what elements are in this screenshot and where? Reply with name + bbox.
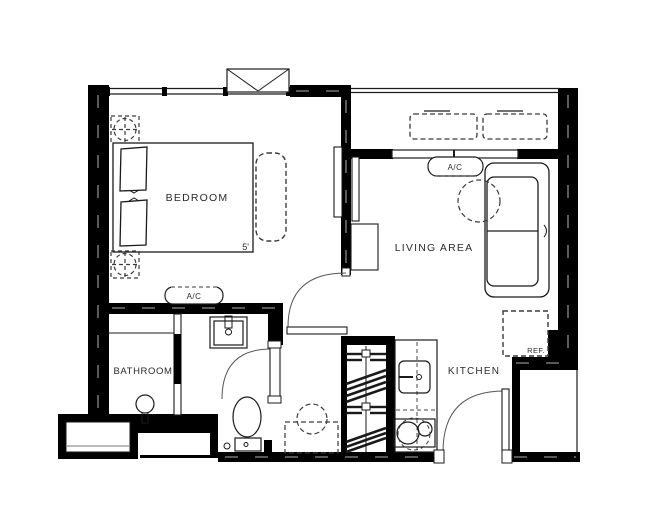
floor-plan-drawing: A/C BEDROOM 5' A/C LIVING AREA REF. [0,0,663,531]
wardrobe-closet-symbol [346,346,386,452]
hall-rug-symbol [285,422,338,453]
ceiling-fixture-symbol [111,116,139,143]
living-ac-unit: A/C [428,157,483,176]
wall-tv-living [352,157,359,221]
kitchen-label: KITCHEN [448,366,500,377]
wall-end-cap [342,268,350,276]
tv-console [351,224,378,270]
bathroom-sink-symbol [210,316,247,348]
bedside-bench-symbol [256,153,286,241]
wall-tv-bedroom [334,147,342,217]
bedroom-ac-label: A/C [187,292,202,301]
bedroom-label: BEDROOM [166,192,229,204]
balcony-railing [351,89,560,93]
sofa-symbol [485,163,549,297]
pillow-icon [120,147,147,191]
round-table-symbol [458,180,500,222]
balcony-planter-symbol [410,111,477,139]
refrigerator-label: REF. [527,346,545,355]
shower-partition [108,314,181,415]
bed-dimension-label: 5' [242,242,249,252]
cooktop-symbol [394,418,435,450]
bay-window-box [227,69,289,92]
kitchen-sink-symbol [399,361,430,393]
living-area-label: LIVING AREA [395,242,474,254]
ceiling-fixture-symbol [111,251,139,278]
entry-door-swing [434,389,512,463]
bedroom-door-swing [287,273,347,334]
refrigerator-symbol: REF. [503,311,548,356]
toilet-symbol [224,397,261,451]
hall-stool-symbol [297,404,327,434]
pillow-icon [120,200,147,246]
bedroom-ac-unit: A/C [165,287,223,304]
bathroom-label: BATHROOM [114,366,173,377]
kitchen-counter [395,340,437,452]
bathroom-door-swing [222,341,281,403]
balcony-planter-symbol [483,111,547,139]
living-ac-label: A/C [448,163,463,172]
floor-plan: A/C BEDROOM 5' A/C LIVING AREA REF. [0,0,663,531]
